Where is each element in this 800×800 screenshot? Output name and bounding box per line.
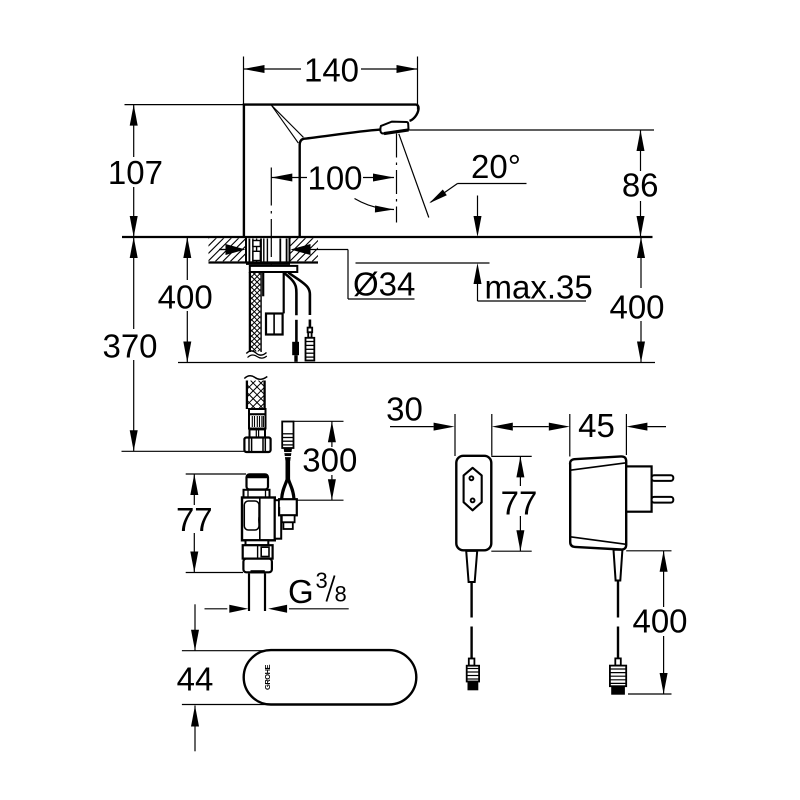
svg-text:20°: 20° xyxy=(471,148,521,185)
svg-text:GROHE: GROHE xyxy=(263,665,272,691)
svg-text:300: 300 xyxy=(302,442,357,479)
svg-text:370: 370 xyxy=(102,327,157,364)
svg-text:77: 77 xyxy=(501,485,538,522)
svg-text:30: 30 xyxy=(386,391,423,428)
svg-text:400: 400 xyxy=(158,278,213,315)
svg-text:8: 8 xyxy=(335,582,347,607)
svg-text:G: G xyxy=(288,573,314,610)
svg-text:86: 86 xyxy=(622,167,659,204)
svg-text:77: 77 xyxy=(176,501,213,538)
svg-text:400: 400 xyxy=(632,603,687,640)
svg-text:100: 100 xyxy=(307,160,362,197)
svg-text:3: 3 xyxy=(316,568,328,593)
svg-text:400: 400 xyxy=(609,289,664,326)
svg-text:45: 45 xyxy=(578,407,615,444)
svg-text:Ø34: Ø34 xyxy=(353,266,415,303)
svg-text:44: 44 xyxy=(177,661,214,698)
svg-text:107: 107 xyxy=(108,154,163,191)
svg-text:max.35: max.35 xyxy=(485,269,593,306)
svg-text:140: 140 xyxy=(304,52,359,89)
